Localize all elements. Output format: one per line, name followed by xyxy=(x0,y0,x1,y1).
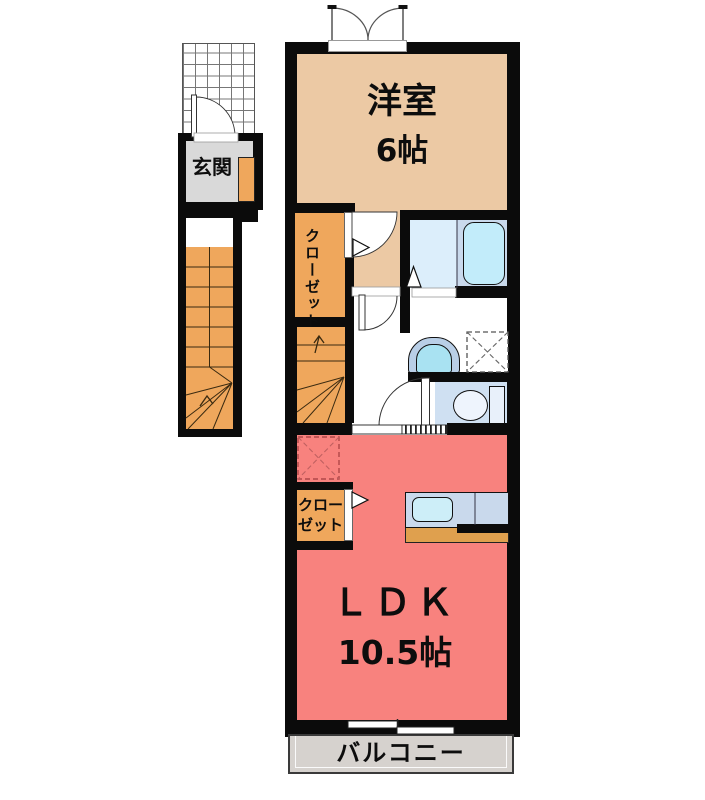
closet-lower-label-line2: ゼット xyxy=(297,515,344,535)
ldk-name-label: ＬＤＫ xyxy=(312,582,478,625)
entrance-label: 玄関 xyxy=(184,156,240,179)
closet-upper-label: クローゼット xyxy=(301,228,322,292)
balcony-window-icon xyxy=(348,719,454,734)
ldk-size-label: 10.5帖 xyxy=(312,634,478,672)
washroom-door-swing-icon xyxy=(363,296,397,330)
refrigerator-space-icon xyxy=(298,437,339,479)
casement-window-arc-right xyxy=(368,8,403,40)
bath-folding-door-icon xyxy=(407,267,422,288)
closet-lower-label: クロー ゼット xyxy=(297,495,344,536)
entrance-door-swing-icon xyxy=(196,97,235,136)
floor-plan: 玄関 洋室 6帖 クローゼット クロー ゼット ＬＤＫ 10.5帖 バルコニー xyxy=(0,0,705,800)
staircase-lower-treads xyxy=(186,247,233,429)
staircase-upper-treads xyxy=(297,336,345,423)
bedroom-size-label: 6帖 xyxy=(322,134,482,170)
entrance-door-leaf-icon xyxy=(192,95,197,137)
washroom-door-leaf-icon xyxy=(359,295,365,330)
sliding-door-panel xyxy=(352,425,402,434)
closet-lower-folding-door-icon xyxy=(352,492,368,508)
closet-lower-label-line1: クロー xyxy=(297,495,344,515)
entrance-threshold xyxy=(194,133,238,142)
bath-threshold xyxy=(412,288,456,297)
washing-machine-space-icon xyxy=(467,332,508,372)
balcony-label: バルコニー xyxy=(301,740,501,768)
casement-hinge-left xyxy=(328,5,337,9)
sliding-door-track xyxy=(402,425,447,434)
casement-window-arc-left xyxy=(332,8,368,40)
toilet-door-leaf-icon xyxy=(422,378,430,426)
toilet-door-swing-icon xyxy=(379,378,427,426)
bedroom-name-label: 洋室 xyxy=(322,82,482,122)
casement-hinge-right xyxy=(399,5,408,9)
